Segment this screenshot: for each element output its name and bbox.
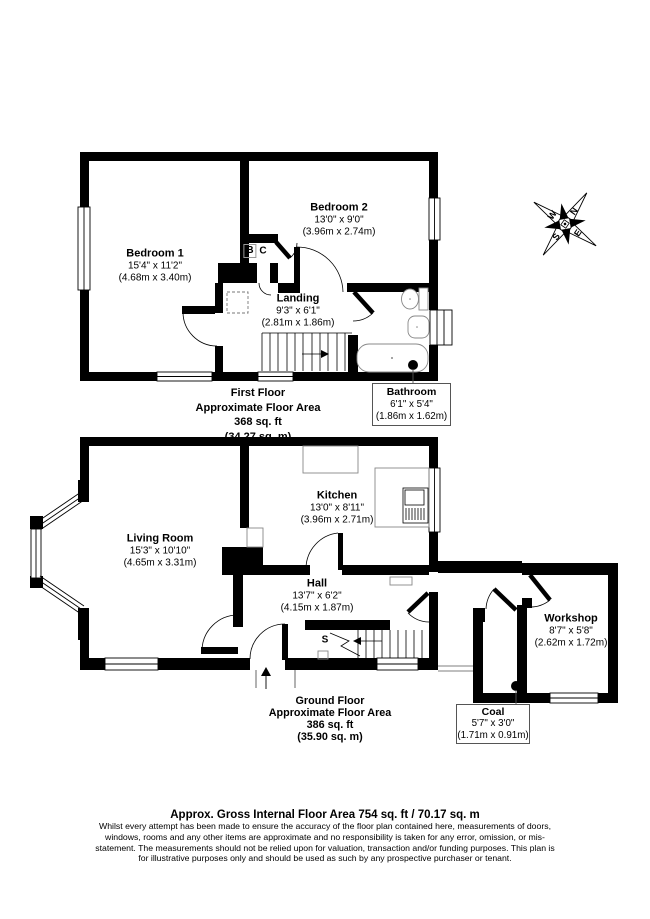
first-floor-area-m: (34.27 sq. m) xyxy=(196,430,321,445)
bedroom2-door-arc xyxy=(297,247,343,292)
front-door-arc xyxy=(250,624,285,659)
hall-bottom-window xyxy=(377,658,418,670)
workshop-size-ft: 8'7" x 5'8" xyxy=(535,626,608,638)
first-floor-stairs xyxy=(262,333,352,371)
kitchen-size-ft: 13'0" x 8'11" xyxy=(301,503,374,515)
ground-floor-summary: Ground Floor Approximate Floor Area 386 … xyxy=(269,695,392,743)
ground-floor-area-ft: 386 sq. ft xyxy=(269,719,392,731)
coal-size-ft: 5'7" x 3'0" xyxy=(457,718,529,730)
hall-name: Hall xyxy=(281,578,354,591)
toilet xyxy=(402,288,429,310)
landing-label: Landing 9'3" x 6'1" (2.81m x 1.86m) xyxy=(262,293,335,330)
floor-plan-page: N E S W xyxy=(0,0,650,919)
kitchen-flue xyxy=(247,528,263,547)
first-floor-area-ft: 368 sq. ft xyxy=(196,415,321,430)
kitchen-door-arc xyxy=(306,533,338,568)
workshop-window xyxy=(550,693,598,703)
bathroom-fixtures xyxy=(357,288,429,372)
back-door-leaf xyxy=(408,593,428,612)
first-floor-bottom-window-left xyxy=(157,372,212,381)
kitchen-name: Kitchen xyxy=(301,490,374,503)
bedroom1-size-m: (4.68m x 3.40m) xyxy=(119,273,192,285)
ground-floor-area-caption: Approximate Floor Area xyxy=(269,707,392,719)
hall-size-ft: 13'7" x 6'2" xyxy=(281,591,354,603)
floor-plan-drawing: N E S W xyxy=(0,0,650,919)
living-room-label: Living Room 15'3" x 10'10" (4.65m x 3.31… xyxy=(124,533,197,570)
bedroom1-door-arc xyxy=(183,312,217,346)
workshop-door-leaf xyxy=(530,575,550,600)
bedroom1-label: Bedroom 1 15'4" x 11'2" (4.68m x 3.40m) xyxy=(119,248,192,285)
living-room-size-m: (4.65m x 3.31m) xyxy=(124,558,197,570)
living-room-bottom-window xyxy=(105,658,158,670)
bedroom1-window xyxy=(78,207,90,290)
coal-size-m: (1.71m x 0.91m) xyxy=(457,730,529,742)
bathroom-size-ft: 6'1" x 5'4" xyxy=(373,399,450,411)
first-floor-summary: First Floor Approximate Floor Area 368 s… xyxy=(196,386,321,444)
bedroom1-size-ft: 15'4" x 11'2" xyxy=(119,261,192,273)
stairs-s-label: S xyxy=(322,635,329,646)
living-room-size-ft: 15'3" x 10'10" xyxy=(124,546,197,558)
bedroom2-label: Bedroom 2 13'0" x 9'0" (3.96m x 2.74m) xyxy=(303,202,376,239)
kitchen-label: Kitchen 13'0" x 8'11" (3.96m x 2.71m) xyxy=(301,490,374,527)
ground-floor-area-m: (35.90 sq. m) xyxy=(269,731,392,743)
stairs-break-line xyxy=(330,633,360,656)
loft-hatch-dashed xyxy=(227,292,248,313)
cupboard-door-leaf xyxy=(276,242,290,258)
front-entrance xyxy=(256,667,295,689)
ground-floor-stairs xyxy=(330,630,422,658)
outbuilding-doors xyxy=(486,575,550,610)
ground-floor-plan xyxy=(30,437,522,689)
coal-callout-dot xyxy=(511,681,521,691)
living-room-door-arc xyxy=(202,615,238,651)
boundary-lines xyxy=(438,666,473,671)
bedroom2-name: Bedroom 2 xyxy=(303,202,376,215)
workshop-label: Workshop 8'7" x 5'8" (2.62m x 1.72m) xyxy=(535,613,608,650)
compass-rose-icon: N E S W xyxy=(530,189,600,259)
workshop-name: Workshop xyxy=(535,613,608,626)
bedroom2-size-ft: 13'0" x 9'0" xyxy=(303,215,376,227)
first-floor-title: First Floor xyxy=(196,386,321,401)
hall-radiator xyxy=(390,577,412,585)
bathroom-window xyxy=(430,310,452,345)
bathroom-door-leaf xyxy=(354,292,373,313)
kitchen-size-m: (3.96m x 2.71m) xyxy=(301,515,374,527)
bedroom2-size-m: (3.96m x 2.74m) xyxy=(303,227,376,239)
bathroom-name: Bathroom xyxy=(373,386,450,399)
gross-area-title: Approx. Gross Internal Floor Area 754 sq… xyxy=(170,809,480,821)
first-floor-bottom-window-right xyxy=(258,372,293,381)
hall-size-m: (4.15m x 1.87m) xyxy=(281,603,354,615)
stairs-arrow-head xyxy=(353,637,361,645)
bedroom2-window xyxy=(429,198,440,240)
kitchen-window xyxy=(429,468,440,532)
boiler xyxy=(403,488,428,523)
entry-arrow-head xyxy=(261,667,271,676)
bathtub xyxy=(357,344,428,372)
landing-size-m: (2.81m x 1.86m) xyxy=(262,318,335,330)
understairs-step xyxy=(318,651,328,659)
landing-size-ft: 9'3" x 6'1" xyxy=(262,306,335,318)
disclaimer-text: Whilst every attempt has been made to en… xyxy=(91,821,559,864)
bathroom-door-arc xyxy=(353,313,373,321)
ground-floor-walls xyxy=(30,437,522,670)
coal-door-arc xyxy=(486,589,494,609)
cupboard-b-label: B xyxy=(243,244,256,258)
sink xyxy=(408,316,429,338)
landing-name: Landing xyxy=(262,293,335,306)
cupboard-c-label: C xyxy=(259,246,266,257)
coal-name: Coal xyxy=(457,706,529,719)
living-room-name: Living Room xyxy=(124,533,197,546)
coal-callout-box: Coal 5'7" x 3'0" (1.71m x 0.91m) xyxy=(456,704,530,744)
first-floor-area-caption: Approximate Floor Area xyxy=(196,401,321,416)
workshop-size-m: (2.62m x 1.72m) xyxy=(535,638,608,650)
bathroom-callout-box: Bathroom 6'1" x 5'4" (1.86m x 1.62m) xyxy=(372,383,451,426)
coal-door-leaf xyxy=(494,589,516,610)
bay-window-floor xyxy=(43,483,89,617)
bedroom1-name: Bedroom 1 xyxy=(119,248,192,261)
back-door-arc xyxy=(408,613,429,622)
bathroom-size-m: (1.86m x 1.62m) xyxy=(373,411,450,423)
bathroom-callout-dot xyxy=(408,360,418,370)
hall-label: Hall 13'7" x 6'2" (4.15m x 1.87m) xyxy=(281,578,354,615)
workshop-door-arc xyxy=(530,600,550,607)
kitchen-worktop xyxy=(303,446,358,473)
ground-floor-title: Ground Floor xyxy=(269,695,392,707)
